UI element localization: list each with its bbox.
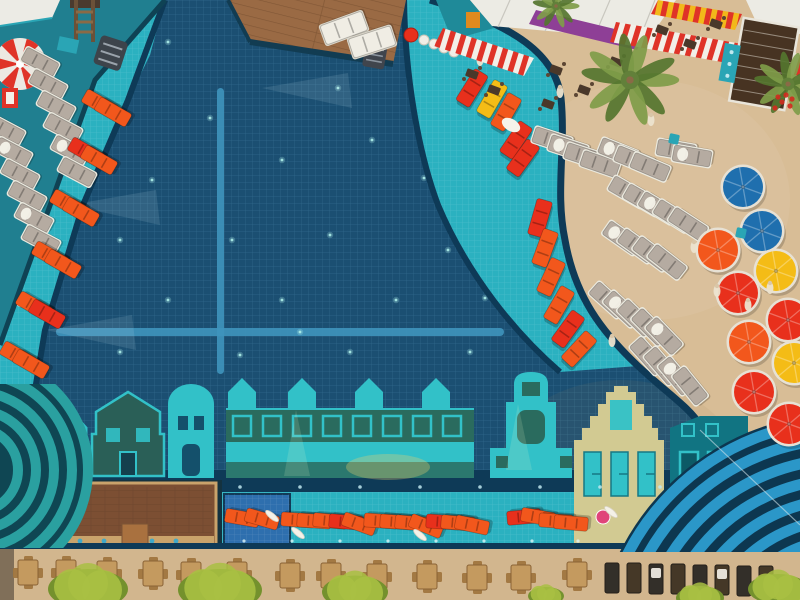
bar-stool bbox=[78, 539, 83, 544]
pole bbox=[752, 390, 756, 394]
seam bbox=[340, 517, 341, 527]
table-top bbox=[511, 565, 531, 590]
edge-light bbox=[530, 539, 533, 542]
edge-light bbox=[242, 539, 245, 542]
pool-light bbox=[445, 247, 451, 253]
pool-light bbox=[165, 39, 171, 45]
pool-light bbox=[117, 349, 123, 355]
chair bbox=[668, 22, 672, 26]
chair bbox=[462, 77, 466, 81]
pole bbox=[774, 269, 778, 273]
chair bbox=[590, 82, 594, 86]
towel bbox=[717, 569, 727, 579]
red-flower bbox=[779, 99, 784, 104]
window bbox=[233, 416, 251, 436]
dot bbox=[281, 299, 284, 302]
white-stool bbox=[419, 35, 429, 45]
teal-bin bbox=[668, 133, 680, 145]
orange-door bbox=[466, 12, 480, 28]
chair bbox=[706, 27, 710, 31]
head bbox=[715, 284, 719, 288]
red-flower bbox=[772, 105, 777, 110]
tower-base-stripe bbox=[6, 92, 14, 104]
table-top bbox=[417, 564, 437, 589]
arch-door bbox=[182, 444, 200, 476]
chair bbox=[722, 16, 726, 20]
pool-light bbox=[467, 349, 473, 355]
pool-light bbox=[165, 297, 171, 303]
edge-light bbox=[298, 485, 302, 489]
dot bbox=[469, 351, 472, 354]
chair bbox=[652, 33, 656, 37]
seam bbox=[406, 518, 407, 528]
lane-line-vertical bbox=[217, 88, 224, 374]
window bbox=[194, 416, 204, 430]
pad bbox=[627, 563, 641, 593]
dot bbox=[395, 299, 398, 302]
head bbox=[768, 281, 772, 285]
table-top bbox=[143, 561, 163, 586]
dot bbox=[167, 41, 170, 44]
top-window bbox=[610, 400, 632, 430]
dark-lounger bbox=[649, 564, 663, 594]
photo-stage bbox=[0, 0, 800, 600]
leaf bbox=[763, 570, 793, 600]
chair bbox=[574, 93, 578, 97]
pole bbox=[747, 340, 751, 344]
pad bbox=[553, 515, 588, 532]
window bbox=[136, 428, 150, 442]
bar-stool bbox=[174, 539, 179, 544]
edge-light bbox=[386, 539, 389, 542]
teal-bin bbox=[735, 227, 747, 239]
seam bbox=[518, 513, 519, 523]
dot bbox=[281, 159, 284, 162]
pole bbox=[792, 361, 796, 365]
window bbox=[560, 456, 572, 468]
pool-light bbox=[229, 237, 235, 243]
mural-tower-small bbox=[168, 384, 214, 478]
edge-light bbox=[418, 485, 422, 489]
chair bbox=[696, 36, 700, 40]
pool-light bbox=[347, 349, 353, 355]
pole bbox=[736, 291, 740, 295]
edge-light bbox=[358, 485, 362, 489]
trunk bbox=[554, 4, 558, 8]
bar-stool bbox=[150, 539, 155, 544]
pole bbox=[716, 248, 720, 252]
red-stool bbox=[404, 28, 418, 42]
dot bbox=[423, 177, 426, 180]
trunk bbox=[785, 81, 790, 86]
wood-box bbox=[122, 524, 148, 544]
trunk bbox=[626, 76, 633, 83]
pool-light bbox=[149, 177, 155, 183]
edge-light bbox=[338, 539, 341, 542]
window bbox=[496, 456, 508, 468]
dot bbox=[119, 351, 122, 354]
pool-light bbox=[279, 297, 285, 303]
seam bbox=[565, 518, 566, 528]
bar-stool bbox=[102, 539, 107, 544]
pool-light bbox=[279, 157, 285, 163]
edge-light bbox=[658, 485, 662, 489]
dark-lounger bbox=[605, 563, 619, 593]
pole bbox=[760, 229, 764, 233]
head bbox=[610, 334, 614, 338]
chair bbox=[554, 96, 558, 100]
door bbox=[120, 452, 136, 476]
towel bbox=[651, 568, 661, 578]
pool-light bbox=[117, 237, 123, 243]
dot bbox=[371, 139, 374, 142]
pad bbox=[605, 563, 619, 593]
edge-light bbox=[538, 485, 542, 489]
edge-light bbox=[576, 539, 579, 542]
walkway-shadow bbox=[0, 549, 14, 600]
window bbox=[383, 416, 401, 436]
window bbox=[443, 416, 461, 436]
pool-light bbox=[207, 115, 213, 121]
pool-light bbox=[297, 329, 303, 335]
top-window bbox=[522, 382, 540, 396]
head bbox=[746, 298, 750, 302]
head bbox=[692, 240, 696, 244]
window bbox=[106, 428, 120, 442]
table-top bbox=[280, 563, 300, 588]
pole bbox=[741, 185, 745, 189]
seam bbox=[391, 517, 392, 527]
pole bbox=[787, 422, 791, 426]
edge-light bbox=[478, 485, 482, 489]
window bbox=[353, 416, 371, 436]
seam bbox=[452, 518, 453, 528]
edge-light bbox=[238, 485, 242, 489]
pool-light bbox=[393, 297, 399, 303]
edge-light bbox=[598, 485, 602, 489]
seam bbox=[576, 519, 577, 529]
seam bbox=[292, 515, 293, 525]
dot bbox=[484, 297, 487, 300]
edge-light bbox=[434, 539, 437, 542]
red-flower bbox=[787, 103, 792, 108]
head bbox=[558, 85, 562, 89]
orange-lounger bbox=[553, 513, 591, 532]
dot bbox=[209, 117, 212, 120]
window bbox=[263, 416, 281, 436]
chair bbox=[500, 82, 504, 86]
dot bbox=[299, 331, 302, 334]
table-top bbox=[467, 565, 487, 590]
red-flower bbox=[783, 92, 788, 97]
chair bbox=[538, 107, 542, 111]
seam bbox=[375, 516, 376, 526]
seam bbox=[324, 516, 325, 526]
dot bbox=[239, 354, 242, 357]
dot bbox=[447, 249, 450, 252]
pool-light bbox=[327, 232, 333, 238]
dot bbox=[329, 234, 332, 237]
table-top bbox=[18, 560, 38, 585]
red-flower bbox=[789, 96, 794, 101]
dot bbox=[231, 239, 234, 242]
dot bbox=[119, 239, 122, 242]
chair bbox=[478, 66, 482, 70]
seam bbox=[308, 516, 309, 526]
seam bbox=[437, 517, 438, 527]
chair bbox=[484, 93, 488, 97]
chair bbox=[680, 47, 684, 51]
aerial-resort-pool-photo bbox=[0, 0, 800, 600]
seam bbox=[550, 516, 551, 526]
pool-light bbox=[369, 137, 375, 143]
dot bbox=[349, 351, 352, 354]
dot bbox=[151, 179, 154, 182]
chair bbox=[546, 73, 550, 77]
dark-lounger bbox=[627, 563, 641, 593]
dot bbox=[167, 299, 170, 302]
window bbox=[413, 416, 431, 436]
head bbox=[649, 113, 653, 117]
window bbox=[323, 416, 341, 436]
chair bbox=[562, 62, 566, 66]
edge-light bbox=[290, 539, 293, 542]
window bbox=[178, 416, 188, 430]
table-top bbox=[567, 562, 587, 587]
pole bbox=[786, 318, 790, 322]
red-flower bbox=[775, 94, 780, 99]
underwater-glow bbox=[346, 454, 430, 480]
pool-light bbox=[237, 352, 243, 358]
edge-light bbox=[482, 539, 485, 542]
